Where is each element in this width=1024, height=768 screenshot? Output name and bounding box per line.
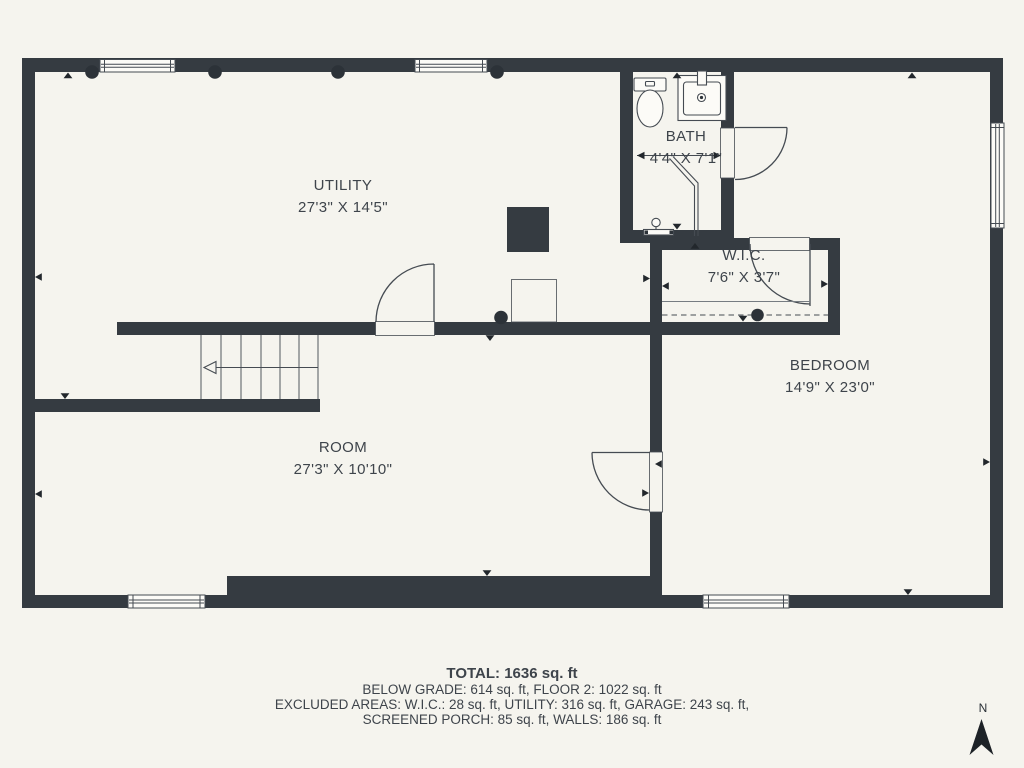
sink-faucet — [698, 71, 707, 85]
room-label-bedroom: BEDROOM 14'9" X 23'0" — [785, 355, 875, 399]
window-bottom-bedroom — [703, 595, 789, 608]
toilet-flush-button — [646, 82, 655, 87]
window-right — [991, 123, 1004, 228]
room-dims: 27'3" X 10'10" — [294, 459, 393, 481]
summary-line: EXCLUDED AREAS: W.I.C.: 28 sq. ft, UTILI… — [275, 697, 749, 712]
utility-door-opening — [376, 322, 435, 336]
wall-left — [22, 58, 35, 608]
support-post — [494, 311, 508, 325]
room-dims: 14'9" X 23'0" — [785, 377, 875, 399]
room-name: BEDROOM — [785, 355, 875, 377]
utility-door — [376, 264, 434, 322]
utility-equipment — [494, 207, 556, 324]
room-dims: 7'6" X 3'7" — [708, 267, 781, 289]
stair-direction-arrow — [204, 362, 216, 374]
appliance-outline — [512, 280, 557, 323]
window-top-left — [100, 60, 175, 73]
toilet — [634, 78, 666, 127]
room-label-room: ROOM 27'3" X 10'10" — [294, 437, 393, 481]
bath-door — [735, 128, 787, 180]
summary-total: TOTAL: 1636 sq. ft — [275, 666, 749, 681]
summary-line: SCREENED PORCH: 85 sq. ft, WALLS: 186 sq… — [275, 712, 749, 727]
wall-wic-right — [828, 238, 840, 335]
walls — [22, 58, 1003, 608]
room-name: BATH — [650, 126, 723, 148]
room-name: UTILITY — [298, 175, 388, 197]
wall-bottom-thick — [227, 576, 662, 608]
wall-middle — [117, 322, 840, 335]
shower-valve — [652, 218, 660, 226]
room-name: W.I.C. — [708, 245, 781, 267]
toilet-bowl — [637, 90, 663, 127]
wall-bath-left — [620, 58, 633, 243]
floor-plan: UTILITY 27'3" X 14'5" BATH 4'4" X 7'1" W… — [0, 0, 1024, 768]
summary-line: BELOW GRADE: 614 sq. ft, FLOOR 2: 1022 s… — [275, 682, 749, 697]
staircase — [201, 335, 318, 399]
room-name: ROOM — [294, 437, 393, 459]
window-bottom-left — [128, 595, 205, 608]
window-top-center — [415, 60, 487, 73]
wall-room-divider — [650, 230, 662, 608]
room-dims: 4'4" X 7'1" — [650, 148, 723, 170]
bath-door-opening — [721, 128, 735, 178]
furnace-block — [507, 207, 549, 252]
room-label-utility: UTILITY 27'3" X 14'5" — [298, 175, 388, 219]
room-label-wic: W.I.C. 7'6" X 3'7" — [708, 245, 781, 289]
room-dims: 27'3" X 14'5" — [298, 197, 388, 219]
area-summary: TOTAL: 1636 sq. ft BELOW GRADE: 614 sq. … — [275, 666, 749, 727]
room-label-bath: BATH 4'4" X 7'1" — [650, 126, 723, 170]
wall-stair-lower — [22, 399, 320, 412]
north-label: N — [979, 701, 988, 715]
closet-rod-support — [751, 309, 764, 322]
bedroom-door — [592, 453, 650, 511]
north-arrow-icon — [970, 719, 994, 755]
sink-vanity — [678, 71, 726, 121]
